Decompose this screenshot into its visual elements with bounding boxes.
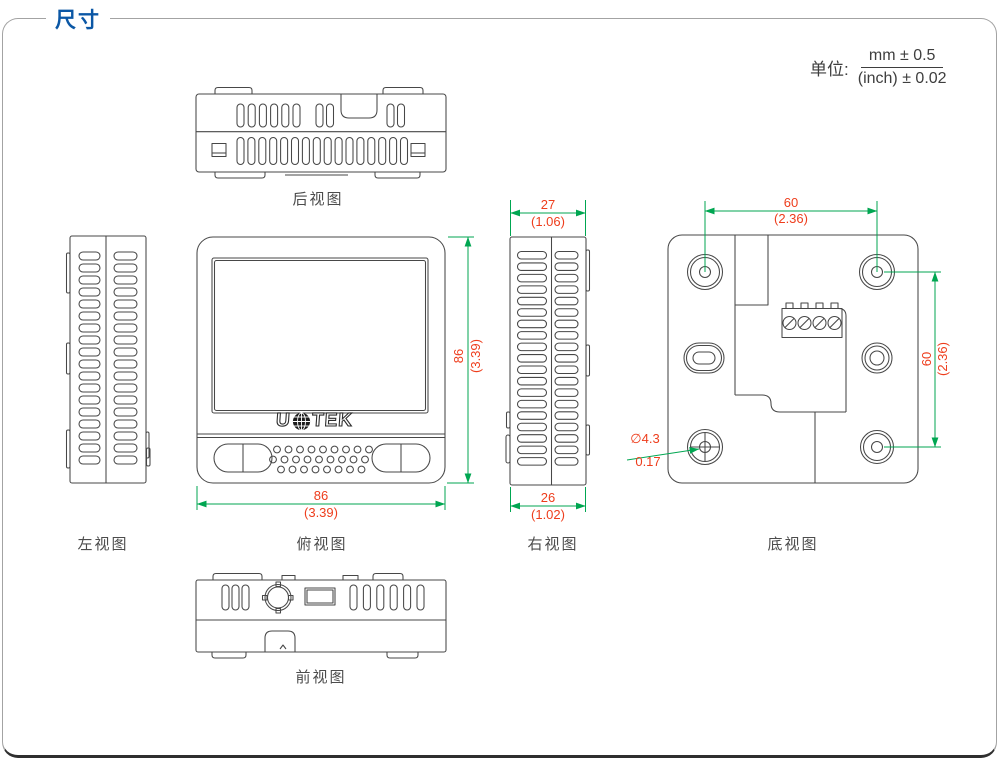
din-profile: [735, 235, 768, 395]
left-rail-bump: [67, 253, 71, 293]
right-vent-slots: [518, 252, 547, 466]
right-view-drawing: [506, 237, 590, 485]
logo-text-left: U: [275, 411, 291, 431]
dim-top-width-inch: (3.39): [291, 506, 351, 520]
center-hole-right: [862, 343, 892, 373]
dim-bottom-width-inch: (2.36): [761, 212, 821, 226]
left-body: [70, 236, 146, 483]
rear-vent-slots: [237, 104, 300, 127]
units-inch: (inch) ± 0.02: [856, 68, 949, 88]
dim-hole-dia-inch: 0.17: [618, 455, 678, 469]
rear-clip-right: [411, 144, 425, 157]
display-screen: [212, 258, 428, 413]
oval-slot: [684, 343, 724, 373]
units-mm: mm ± 0.5: [861, 47, 944, 68]
rear-view-drawing: [196, 88, 446, 179]
view-label-right: 右视图: [508, 533, 598, 554]
front-top-tab-left: [213, 574, 262, 581]
dim-right-top-mm: 27: [518, 198, 578, 212]
rear-bottom-tab-right: [375, 172, 420, 178]
dim-right-top-inch: (1.06): [518, 215, 578, 229]
speaker-grille: [270, 446, 373, 473]
bottom-view-drawing: [668, 235, 918, 483]
left-vent-slots: [79, 252, 100, 464]
units-note: 单位: mm ± 0.5 (inch) ± 0.02: [810, 47, 949, 88]
terminal-screws: [783, 317, 841, 330]
front-body: [196, 580, 446, 652]
dim-top-height-inch: (3.39): [469, 334, 483, 378]
dim-bottom-height-inch: (2.36): [936, 337, 950, 381]
view-label-left: 左视图: [58, 533, 148, 554]
rear-clip-left: [212, 144, 226, 157]
dimension-drawing-page: 尺寸 单位: mm ± 0.5 (inch) ± 0.02: [0, 0, 999, 763]
view-label-front: 前视图: [276, 666, 366, 687]
rear-top-tab-right: [383, 88, 423, 95]
dim-top-height-mm: 86: [452, 334, 466, 378]
rear-bottom-tab-left: [215, 172, 265, 178]
left-view-drawing: [67, 236, 151, 483]
rear-body: [196, 94, 446, 172]
logo-text-right: TEK: [311, 411, 353, 431]
front-view-drawing: [196, 574, 446, 659]
dim-bottom-height-mm: 60: [920, 337, 934, 381]
control-button-left: [214, 444, 272, 472]
units-prefix: 单位:: [810, 55, 849, 80]
dim-right-bottom-mm: 26: [518, 491, 578, 505]
drawing-canvas: [0, 0, 999, 763]
front-bottom-tab-right: [387, 652, 418, 658]
rear-notch: [341, 94, 377, 118]
units-fraction: mm ± 0.5 (inch) ± 0.02: [856, 47, 949, 88]
rear-vent-slots-lower: [237, 138, 408, 165]
top-view-drawing: [197, 237, 445, 483]
right-rail-bump: [586, 250, 590, 291]
control-button-right: [372, 444, 430, 472]
front-bottom-tab-left: [212, 652, 246, 658]
rect-port: [305, 588, 335, 605]
uotek-logo: U TEK: [276, 410, 353, 432]
globe-icon: [292, 412, 311, 431]
dim-bottom-width-mm: 60: [761, 196, 821, 210]
serial-round-connector: [263, 582, 294, 613]
rear-top-tab-left: [215, 88, 252, 95]
view-label-bottom: 底视图: [748, 533, 838, 554]
dim-right-bottom-inch: (1.02): [518, 508, 578, 522]
page-title: 尺寸: [46, 4, 110, 34]
view-label-top: 俯视图: [277, 533, 367, 554]
mounting-hole-bottom-left: [688, 430, 723, 465]
front-top-tab-right: [373, 574, 403, 581]
view-label-rear: 后视图: [273, 188, 363, 209]
front-vent-slots-left: [222, 585, 249, 610]
dim-hole-dia-mm: ∅4.3: [615, 432, 675, 446]
dim-top-width-mm: 86: [291, 489, 351, 503]
usb-cutout: [265, 631, 295, 652]
front-vent-slots-right: [350, 585, 424, 610]
terminal-block: [782, 303, 842, 338]
